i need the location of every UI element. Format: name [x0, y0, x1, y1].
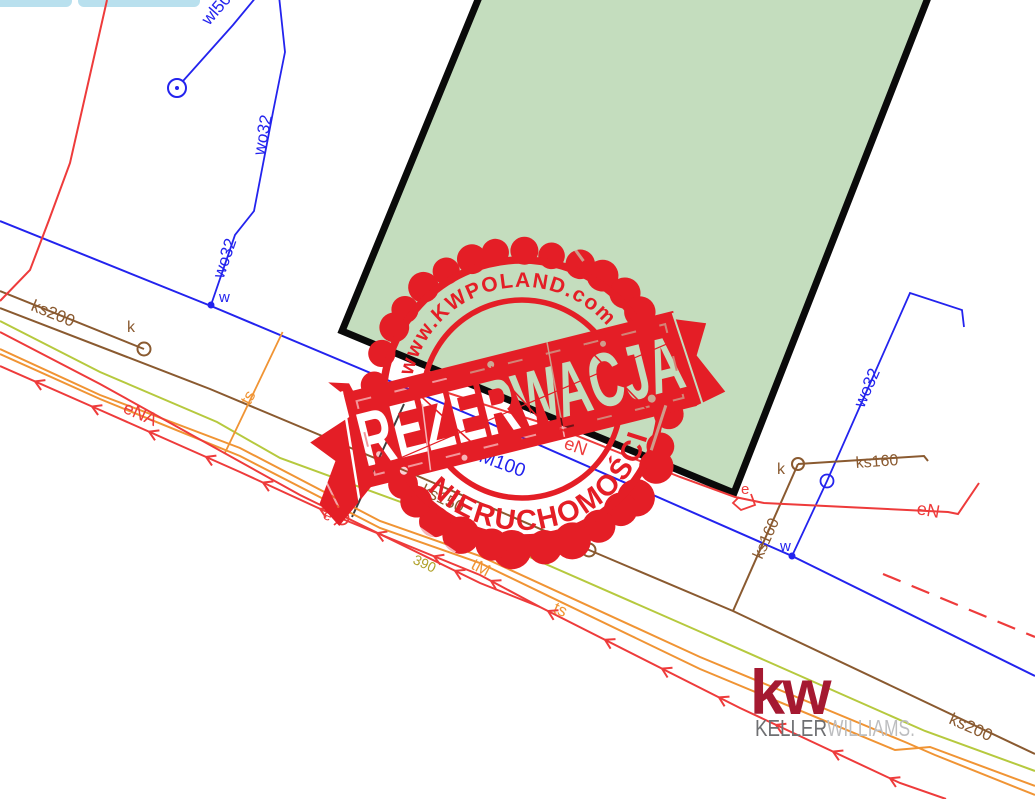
svg-text:w: w: [218, 289, 230, 306]
svg-text:k: k: [127, 319, 136, 336]
svg-text:eN: eN: [915, 498, 941, 522]
svg-text:KELLER: KELLER: [755, 715, 827, 741]
svg-text:WILLIAMS.: WILLIAMS.: [827, 715, 915, 741]
svg-text:e: e: [741, 481, 749, 498]
svg-text:ks160: ks160: [855, 452, 899, 472]
svg-text:k: k: [777, 461, 786, 478]
svg-text:w: w: [779, 538, 791, 555]
